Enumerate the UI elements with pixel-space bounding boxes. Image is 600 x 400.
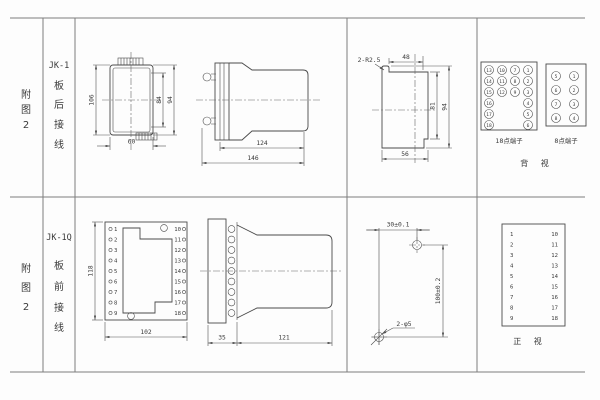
front-view-right-pins: 10 11 12 13 14 15 16 17 18 — [174, 227, 185, 317]
terminal-block-18: 13 14 15 16 17 18 10 11 12 7 8 9 1 2 3 4… — [481, 62, 537, 145]
jk1q-side-view: 35 121 — [200, 219, 342, 346]
terminal-number: 4 — [573, 116, 576, 122]
pin-number: 10 — [551, 232, 558, 238]
wiring-char: 前 — [54, 280, 64, 293]
drawing-canvas: 附 图 2 JK-1 板 后 接 线 106 84 — [0, 0, 600, 400]
technical-drawing-sheet: 附 图 2 JK-1 板 后 接 线 106 84 — [0, 0, 600, 400]
pin-number: 6 — [114, 280, 117, 286]
mounting-hole — [128, 313, 135, 320]
front-view-left-pins: 1 2 3 4 5 6 7 8 9 — [109, 227, 118, 317]
front-view-caption: 正 视 — [513, 336, 547, 346]
dim-146: 146 — [247, 155, 259, 162]
terminal-number: 16 — [486, 101, 492, 107]
dim-30: 30±0.1 — [387, 222, 410, 229]
terminal-number: 4 — [527, 101, 530, 107]
row2-model-label: JK-1Q 板 前 接 线 — [46, 233, 72, 334]
jk1q-pin-table: 1 2 3 4 5 6 7 8 9 10 11 12 13 14 15 16 1… — [502, 224, 565, 346]
fig-label-char: 附 — [21, 262, 31, 275]
radius-label: 2-R2.5 — [358, 57, 381, 64]
terminal-number: 8 — [555, 116, 558, 122]
fig-label-char: 图 — [21, 104, 31, 116]
pin-number: 15 — [551, 285, 558, 291]
pin-number: 4 — [114, 259, 118, 265]
drill-hole-bottom — [371, 329, 387, 345]
pin-number: 16 — [551, 295, 558, 301]
jk1-rear-outline-view: 106 84 94 60 — [89, 52, 178, 152]
hole-diameter-label: 2-φ5 — [396, 321, 411, 328]
terminal-number: 11 — [499, 79, 505, 85]
terminal-number: 5 — [527, 112, 530, 118]
fig-label-char: 2 — [23, 302, 29, 313]
pin-number: 16 — [174, 290, 181, 296]
dim-35: 35 — [218, 335, 226, 342]
terminal-block-8: 5 6 7 8 1 2 3 4 8点端子 背 视 — [520, 64, 586, 168]
pin-number: 13 — [174, 259, 181, 265]
fig-label-char: 图 — [21, 282, 31, 294]
pin-number: 1 — [114, 227, 117, 233]
wiring-char: 接 — [54, 301, 64, 314]
top-connector-hatch — [118, 58, 143, 65]
pin-number: 15 — [174, 280, 181, 286]
terminal-number: 7 — [555, 102, 558, 108]
terminal-number: 1 — [527, 68, 530, 74]
wiring-char: 后 — [54, 99, 64, 111]
pin-number: 17 — [174, 301, 181, 307]
pin-number: 7 — [114, 290, 117, 296]
pin-number: 2 — [114, 238, 117, 244]
pin-number: 9 — [114, 311, 117, 317]
wiring-char: 板 — [54, 259, 64, 272]
pin-number: 4 — [510, 264, 514, 270]
pin-number: 8 — [114, 301, 118, 307]
terminal-number: 2 — [573, 88, 576, 94]
pin-table-left-column: 1 2 3 4 5 6 7 8 9 — [510, 232, 514, 322]
pin-number: 18 — [551, 316, 558, 322]
dim-106: 106 — [89, 94, 96, 106]
jk1-panel-cutout: 2-R2.5 48 81 94 56 — [358, 54, 452, 163]
terminal-number: 14 — [486, 79, 492, 85]
terminal-8-caption: 8点端子 — [554, 136, 578, 145]
pin-number: 8 — [510, 306, 514, 312]
pin-number: 9 — [510, 316, 513, 322]
terminal-number: 8 — [514, 79, 517, 85]
terminal-number: 12 — [499, 90, 505, 96]
pin-number: 17 — [551, 306, 558, 312]
terminal-number: 6 — [555, 88, 558, 94]
model-name: JK-1Q — [46, 233, 72, 243]
pin-number: 12 — [174, 248, 181, 254]
wiring-char: 线 — [54, 321, 64, 334]
terminal-number: 9 — [514, 90, 517, 96]
pin-number: 5 — [114, 269, 117, 275]
wiring-char: 接 — [54, 118, 64, 131]
terminal-number: 2 — [527, 79, 530, 85]
dim-81: 81 — [430, 102, 437, 110]
pin-number: 10 — [174, 227, 181, 233]
pin-number: 6 — [510, 285, 513, 291]
model-name: JK-1 — [49, 61, 69, 71]
jk1q-front-view: 1 2 3 4 5 6 7 8 9 10 11 12 13 14 15 16 1… — [88, 222, 188, 341]
fig-label-char: 附 — [21, 88, 31, 101]
terminal-number: 6 — [527, 123, 530, 129]
pin-number: 3 — [510, 253, 513, 259]
dim-118: 118 — [88, 265, 95, 277]
jk1q-drill-template: 30±0.1 100±0.2 2-φ5 — [366, 222, 448, 346]
drill-hole-top — [409, 237, 425, 253]
row2-figure-label: 附 图 2 — [21, 262, 31, 313]
terminal-number: 10 — [499, 68, 505, 74]
pin-number: 3 — [114, 248, 117, 254]
dim-121: 121 — [278, 335, 290, 342]
dim-48: 48 — [402, 54, 410, 61]
pin-number: 7 — [510, 295, 513, 301]
wiring-char: 板 — [54, 79, 64, 92]
wiring-char: 线 — [54, 138, 64, 151]
pin-number: 13 — [551, 264, 558, 270]
mounting-hole — [161, 225, 168, 232]
terminal-number: 17 — [486, 112, 492, 118]
mounting-screws — [203, 73, 216, 125]
terminal-number: 3 — [573, 102, 576, 108]
pin-table-right-column: 10 11 12 13 14 15 16 17 18 — [551, 232, 558, 322]
terminal-number: 18 — [486, 123, 492, 129]
terminal-number: 15 — [486, 90, 492, 96]
terminal-number: 13 — [486, 68, 492, 74]
row1-model-label: JK-1 板 后 接 线 — [49, 61, 69, 151]
dim-56: 56 — [401, 151, 409, 158]
pin-number: 1 — [510, 232, 513, 238]
terminal-18-caption: 18点端子 — [495, 136, 523, 145]
dim-94b: 94 — [442, 103, 449, 111]
pin-number: 11 — [174, 238, 181, 244]
dim-100: 100±0.2 — [435, 278, 442, 305]
terminal-number: 7 — [514, 68, 517, 74]
jk1-side-view: 124 146 — [196, 63, 322, 166]
dim-124: 124 — [256, 140, 268, 147]
fig-label-char: 2 — [23, 120, 29, 131]
terminal-number: 3 — [527, 90, 530, 96]
pin-number: 11 — [551, 243, 558, 249]
dim-94: 94 — [167, 96, 174, 104]
pin-number: 2 — [510, 243, 513, 249]
pin-number: 14 — [174, 269, 181, 275]
terminal-number: 5 — [555, 74, 558, 80]
bottom-connector-hatch — [136, 133, 157, 140]
row1-figure-label: 附 图 2 — [21, 88, 31, 131]
rear-view-caption: 背 视 — [520, 158, 554, 168]
pin-number: 5 — [510, 274, 513, 280]
pin-number: 12 — [551, 253, 558, 259]
dim-84: 84 — [156, 96, 163, 104]
terminal-number: 1 — [573, 74, 576, 80]
dim-102: 102 — [140, 329, 152, 336]
pin-number: 14 — [551, 274, 558, 280]
pin-number: 18 — [174, 311, 181, 317]
dim-60: 60 — [128, 139, 136, 146]
